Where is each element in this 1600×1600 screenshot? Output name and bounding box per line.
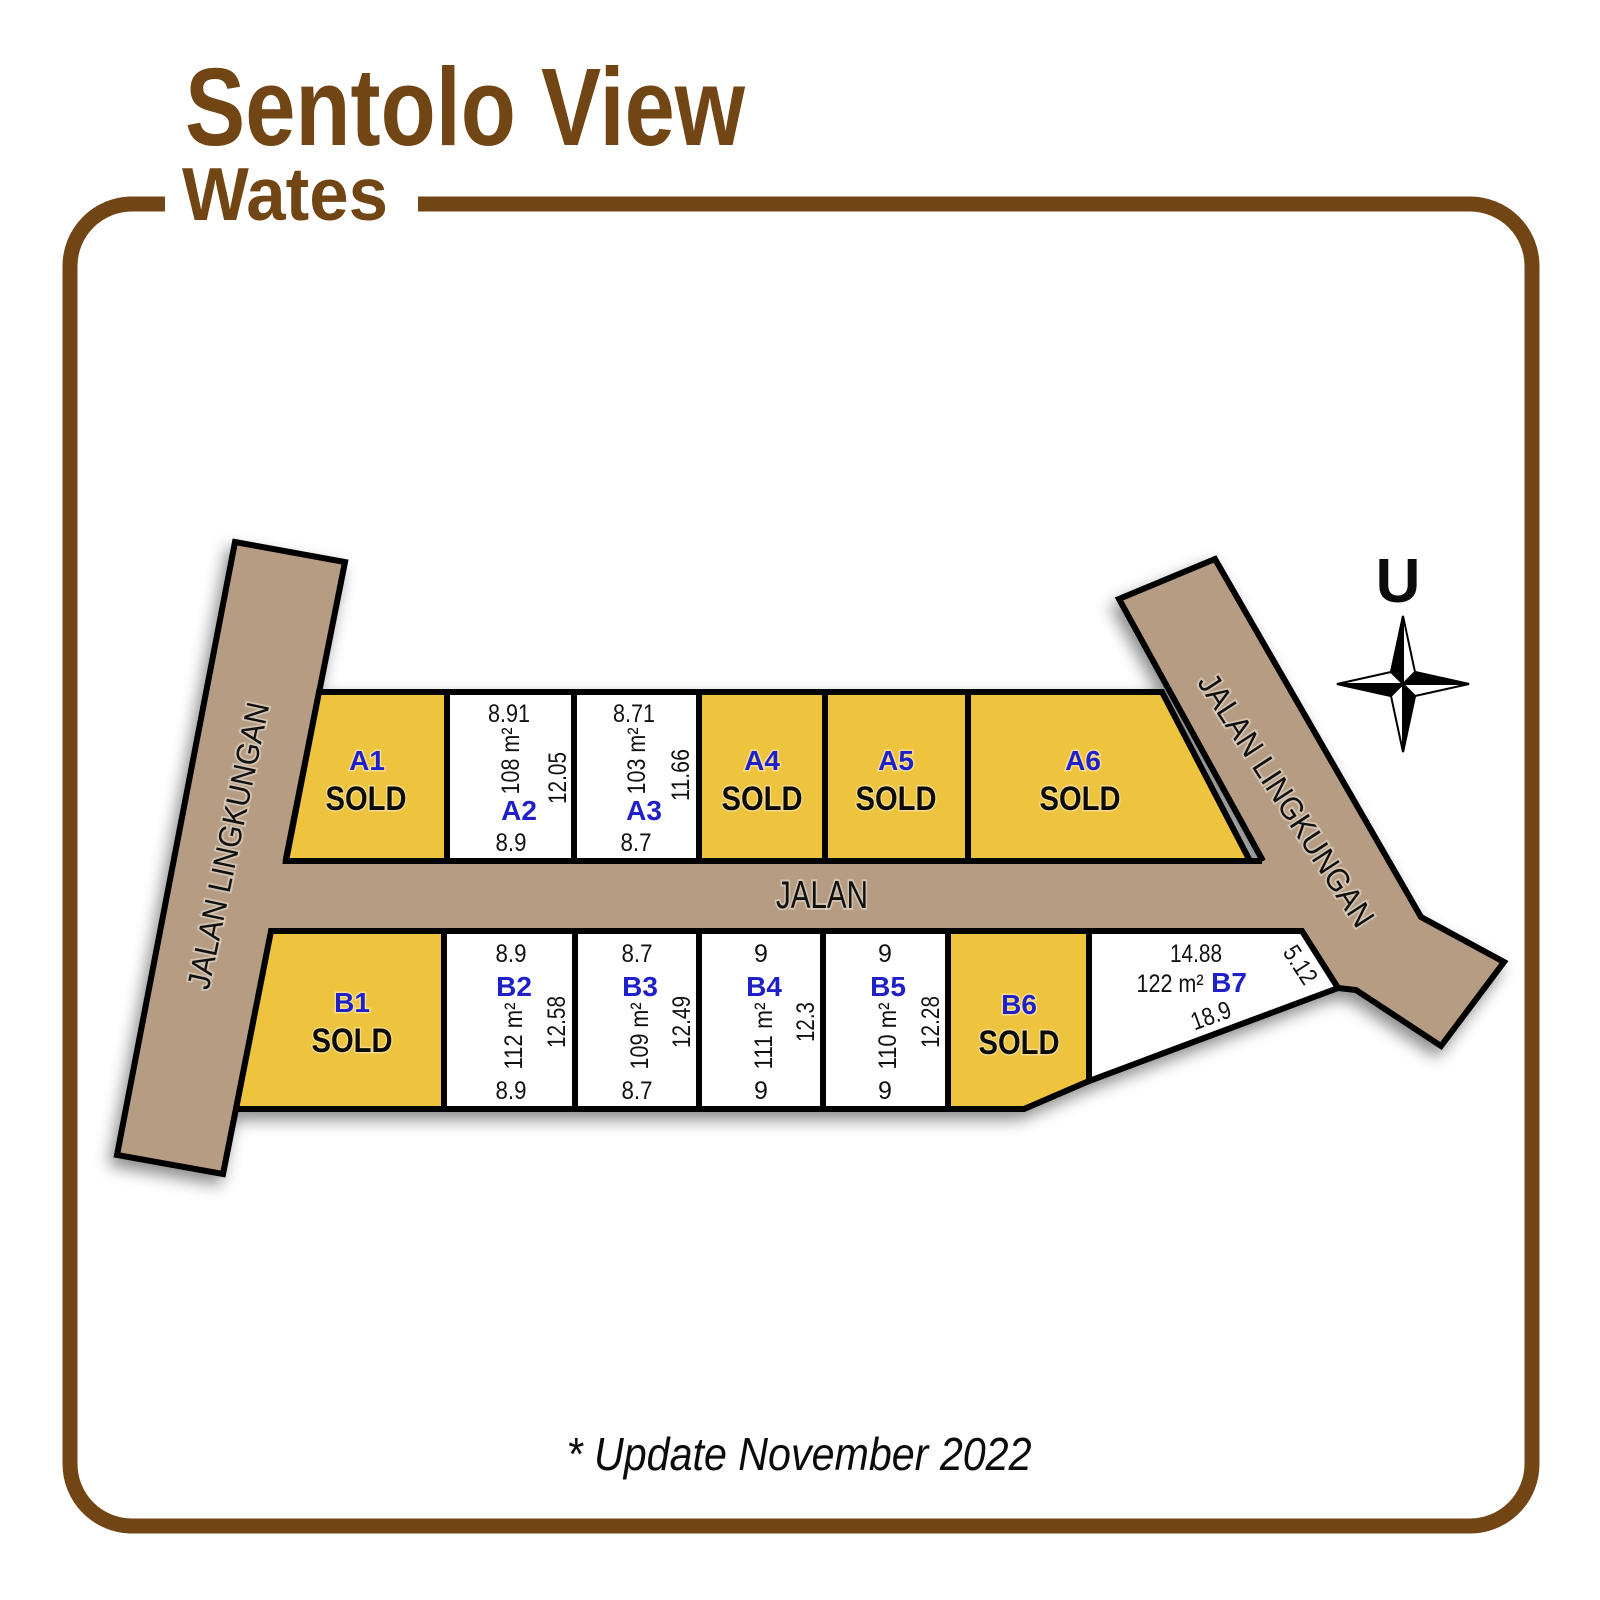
- svg-text:8.91: 8.91: [488, 700, 530, 728]
- svg-text:12.05: 12.05: [544, 752, 572, 804]
- svg-text:108 m²: 108 m²: [497, 728, 525, 795]
- svg-text:9: 9: [754, 1077, 768, 1105]
- svg-text:A2: A2: [501, 795, 537, 826]
- svg-text:112 m²: 112 m²: [500, 1003, 528, 1070]
- svg-text:8.9: 8.9: [496, 829, 527, 857]
- svg-text:A3: A3: [626, 795, 662, 826]
- svg-text:109 m²: 109 m²: [626, 1003, 654, 1070]
- svg-text:* Update November 2022: * Update November 2022: [567, 1428, 1032, 1480]
- svg-text:8.7: 8.7: [621, 829, 652, 857]
- svg-text:110 m²: 110 m²: [874, 1003, 902, 1070]
- svg-text:B1: B1: [334, 987, 370, 1018]
- svg-text:B5: B5: [870, 971, 906, 1002]
- svg-text:B7: B7: [1211, 967, 1247, 998]
- svg-text:A6: A6: [1065, 745, 1101, 776]
- svg-text:B4: B4: [746, 971, 782, 1002]
- svg-text:9: 9: [878, 1077, 892, 1105]
- svg-text:SOLD: SOLD: [722, 780, 803, 818]
- svg-text:12.28: 12.28: [917, 996, 945, 1048]
- svg-text:SOLD: SOLD: [856, 780, 937, 818]
- svg-text:12.49: 12.49: [668, 996, 696, 1048]
- svg-text:A5: A5: [878, 745, 914, 776]
- svg-text:8.9: 8.9: [496, 940, 527, 968]
- svg-text:8.9: 8.9: [496, 1077, 527, 1105]
- svg-text:SOLD: SOLD: [979, 1024, 1060, 1062]
- svg-text:8.7: 8.7: [622, 940, 653, 968]
- svg-text:12.3: 12.3: [792, 1002, 820, 1042]
- svg-text:9: 9: [878, 940, 892, 968]
- svg-text:JALAN: JALAN: [776, 874, 868, 917]
- svg-text:111 m²: 111 m²: [750, 1003, 778, 1070]
- svg-text:SOLD: SOLD: [326, 780, 407, 818]
- svg-text:8.71: 8.71: [613, 700, 655, 728]
- svg-text:8.7: 8.7: [622, 1077, 653, 1105]
- svg-text:U: U: [1376, 547, 1421, 616]
- svg-text:122 m²: 122 m²: [1137, 970, 1204, 998]
- svg-text:12.58: 12.58: [543, 996, 571, 1048]
- svg-text:A1: A1: [349, 745, 385, 776]
- svg-text:B2: B2: [496, 971, 532, 1002]
- svg-text:SOLD: SOLD: [1040, 780, 1121, 818]
- svg-text:9: 9: [754, 940, 768, 968]
- svg-text:B6: B6: [1001, 989, 1037, 1020]
- svg-text:Sentolo View: Sentolo View: [185, 46, 745, 169]
- svg-text:Wates: Wates: [182, 152, 388, 236]
- svg-text:11.66: 11.66: [667, 749, 695, 801]
- svg-text:103 m²: 103 m²: [623, 728, 651, 795]
- svg-text:A4: A4: [744, 745, 780, 776]
- svg-text:B3: B3: [622, 971, 658, 1002]
- svg-text:SOLD: SOLD: [312, 1022, 393, 1060]
- svg-text:14.88: 14.88: [1170, 940, 1222, 968]
